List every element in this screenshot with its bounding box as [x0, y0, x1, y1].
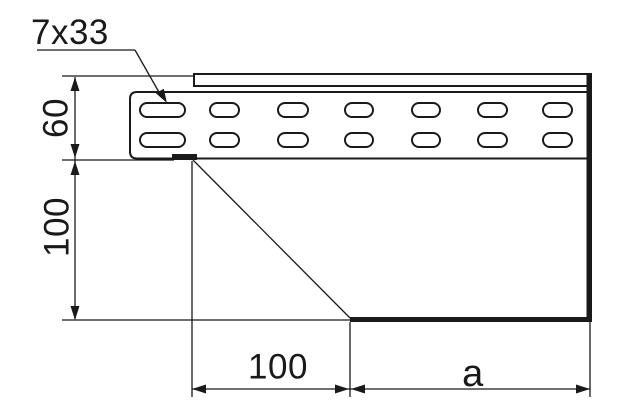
slot — [210, 133, 239, 147]
weld-mark — [172, 154, 197, 160]
arrow-right-right — [576, 385, 590, 394]
perforation-row-bottom — [140, 133, 572, 147]
slot — [412, 133, 440, 147]
slot — [345, 103, 373, 117]
dim-label-drop-height: 100 — [40, 197, 75, 257]
tray-body-outline — [130, 92, 589, 159]
cover-plate — [194, 74, 588, 86]
slot — [210, 103, 239, 117]
cut-edge-right — [587, 73, 593, 322]
arrow-left-left — [192, 385, 206, 394]
slot — [412, 103, 440, 117]
tray-side-view — [130, 73, 592, 322]
bevel-line — [193, 160, 350, 318]
arrow-right-mid — [335, 385, 349, 394]
slot — [478, 133, 507, 147]
callout-leader-line — [135, 50, 160, 94]
callout-label: 7x33 — [31, 15, 109, 50]
slot — [278, 133, 308, 147]
slot — [543, 133, 572, 147]
slot — [543, 103, 572, 117]
drawing-geometry — [0, 0, 625, 419]
slot — [140, 103, 185, 117]
arrow-left-mid — [351, 385, 365, 394]
technical-drawing: 7x33 60 100 100 a — [0, 0, 625, 419]
arrow-down-mid — [71, 144, 80, 158]
arrow-down-bottom — [71, 306, 80, 320]
slot — [345, 133, 373, 147]
dimensioning — [62, 76, 590, 397]
perforation-row-top — [140, 103, 572, 117]
dim-label-side-height: 60 — [39, 98, 74, 138]
arrow-up-mid — [71, 161, 80, 175]
cut-edge-bottom — [350, 317, 592, 322]
dim-label-offset-width: 100 — [248, 350, 308, 385]
slot — [278, 103, 308, 117]
arrow-up-top — [71, 77, 80, 91]
slot — [478, 103, 507, 117]
slot — [140, 133, 185, 147]
dim-label-length: a — [462, 355, 484, 393]
